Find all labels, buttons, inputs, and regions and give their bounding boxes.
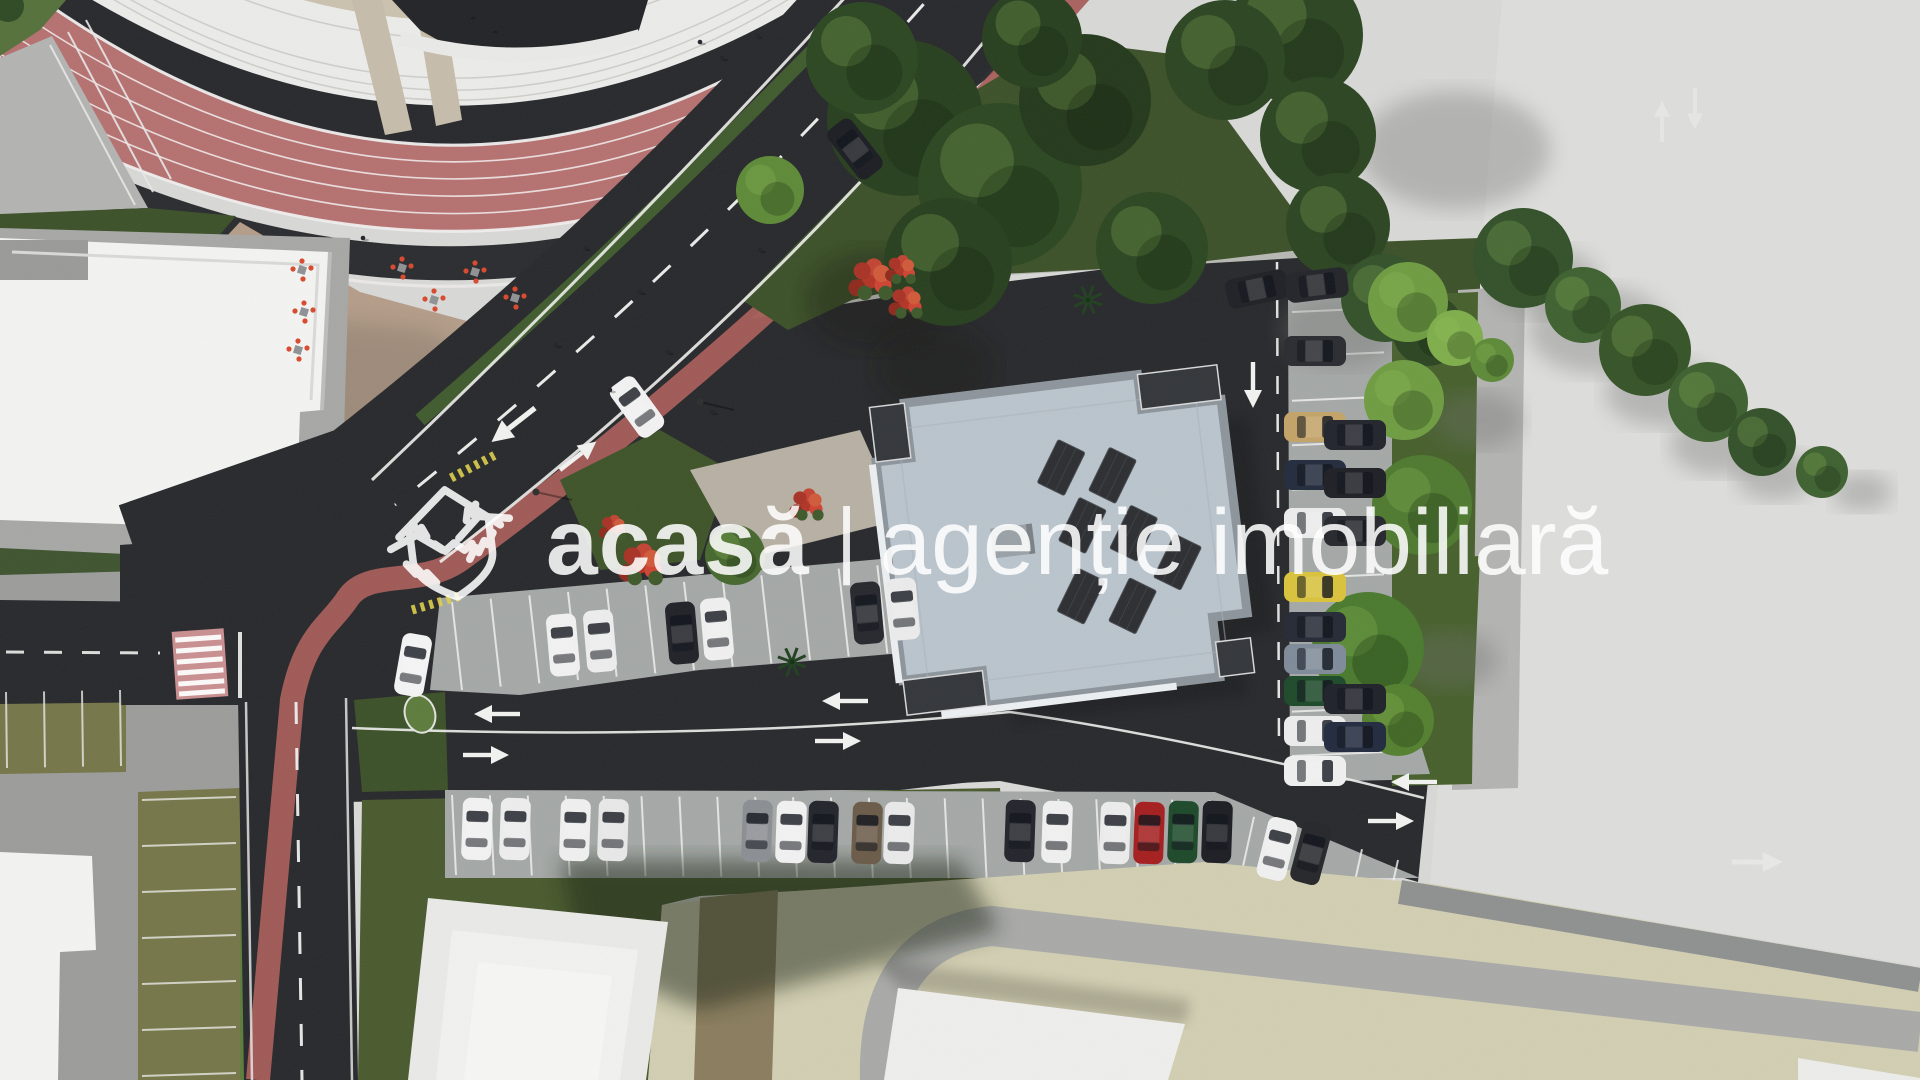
scene-canvas [0,0,1920,1080]
render-grain [0,0,1920,1080]
aerial-render: acasă | agenție imobiliară [0,0,1920,1080]
